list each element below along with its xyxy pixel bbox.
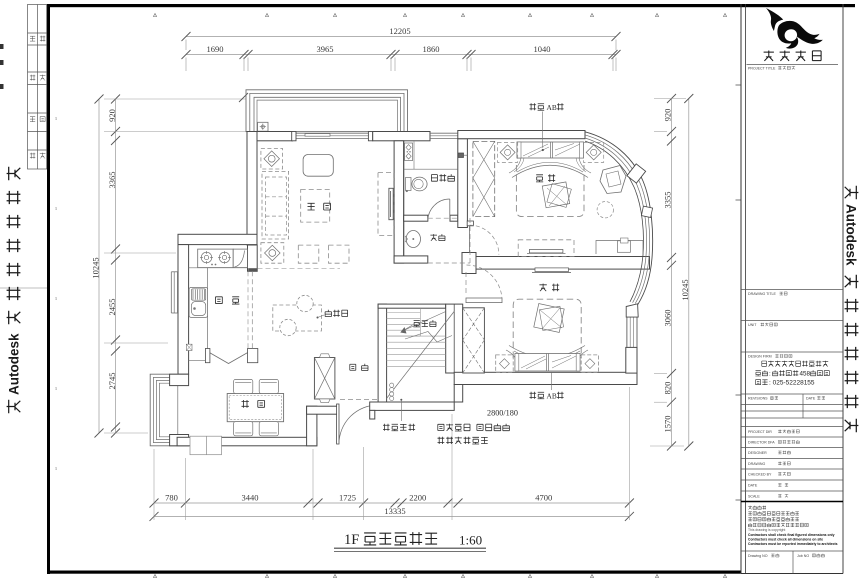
svg-text:CHECKED BY: CHECKED BY xyxy=(748,473,772,477)
svg-text:PROJECT DIR: PROJECT DIR xyxy=(748,430,772,434)
svg-text:Drawing NO: Drawing NO xyxy=(748,554,768,558)
svg-text:PROJECT TITLE: PROJECT TITLE xyxy=(748,67,776,71)
svg-text:This drawing is copyright: This drawing is copyright xyxy=(748,528,785,532)
svg-text:: 025-52228155: : 025-52228155 xyxy=(769,380,815,387)
svg-text:1: 1 xyxy=(55,116,57,121)
svg-text:AB: AB xyxy=(547,103,557,112)
svg-text:AB: AB xyxy=(547,392,557,401)
svg-text:13335: 13335 xyxy=(384,506,405,516)
svg-text:DRAWING TITLE: DRAWING TITLE xyxy=(748,292,777,296)
svg-text:Autodesk: Autodesk xyxy=(844,204,859,266)
svg-text:3060: 3060 xyxy=(663,310,673,327)
svg-text:1: 1 xyxy=(55,466,57,471)
svg-text:1:60: 1:60 xyxy=(459,533,482,548)
svg-text:2745: 2745 xyxy=(107,373,117,390)
svg-text::: : xyxy=(769,371,771,378)
svg-text:DESIGN FIRM: DESIGN FIRM xyxy=(748,355,772,359)
svg-text:2455: 2455 xyxy=(107,299,117,316)
svg-text:2800/180: 2800/180 xyxy=(487,409,518,418)
svg-text:REVISIONS: REVISIONS xyxy=(748,397,768,401)
svg-text:DIRECTOR DFA: DIRECTOR DFA xyxy=(748,441,775,445)
svg-text:DATE: DATE xyxy=(748,484,758,488)
svg-text:UNIT: UNIT xyxy=(748,323,757,327)
svg-text:3440: 3440 xyxy=(242,493,259,503)
svg-text:3965: 3965 xyxy=(317,44,334,54)
svg-text:Contractors must be reported i: Contractors must be reported immediately… xyxy=(748,542,838,546)
svg-text:10245: 10245 xyxy=(680,279,690,300)
svg-text:3355: 3355 xyxy=(663,192,673,209)
svg-text:3365: 3365 xyxy=(107,172,117,189)
svg-text:1690: 1690 xyxy=(207,44,224,54)
svg-text:Contractors shall check final: Contractors shall check final figured di… xyxy=(748,533,835,537)
svg-text:SCALE: SCALE xyxy=(748,495,760,499)
svg-text:458: 458 xyxy=(800,371,811,378)
svg-text:10245: 10245 xyxy=(91,257,101,278)
svg-text:12205: 12205 xyxy=(389,26,410,36)
svg-text:1860: 1860 xyxy=(423,44,440,54)
svg-text:1: 1 xyxy=(55,296,57,301)
svg-text:1725: 1725 xyxy=(339,493,356,503)
svg-text:Contractors must check all dim: Contractors must check all dimensions on… xyxy=(748,537,823,541)
svg-text:920: 920 xyxy=(663,109,673,122)
svg-text:1F: 1F xyxy=(344,532,359,548)
svg-text:Job NO: Job NO xyxy=(797,554,809,558)
svg-text:920: 920 xyxy=(107,109,117,122)
svg-text:DRAWING: DRAWING xyxy=(748,462,765,466)
svg-text:2200: 2200 xyxy=(409,493,426,503)
svg-text:DATE: DATE xyxy=(806,397,816,401)
svg-text:1: 1 xyxy=(55,386,57,391)
svg-text:820: 820 xyxy=(663,382,673,395)
svg-text:1: 1 xyxy=(55,206,57,211)
svg-text:Autodesk: Autodesk xyxy=(6,333,21,395)
svg-text:1570: 1570 xyxy=(663,416,673,433)
svg-text:4700: 4700 xyxy=(535,493,552,503)
svg-text:780: 780 xyxy=(165,493,178,503)
svg-text:1040: 1040 xyxy=(534,44,551,54)
svg-text:DESIGNER: DESIGNER xyxy=(748,451,767,455)
